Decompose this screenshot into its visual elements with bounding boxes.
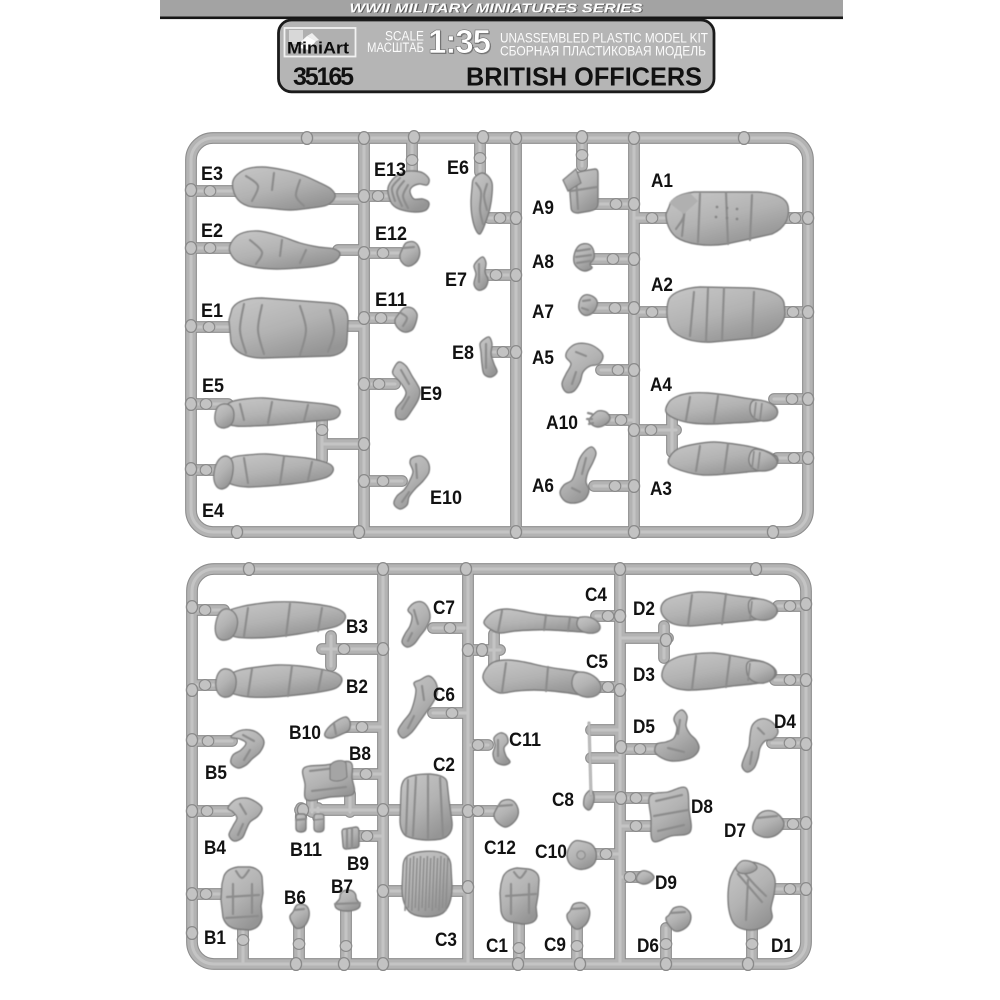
svg-text:A10: A10 (546, 413, 578, 434)
svg-text:E7: E7 (445, 270, 467, 291)
svg-text:B9: B9 (347, 854, 369, 875)
svg-text:D6: D6 (637, 936, 659, 957)
svg-text:C8: C8 (552, 790, 574, 811)
svg-text:A8: A8 (532, 252, 554, 273)
svg-text:C10: C10 (535, 842, 567, 863)
svg-text:WWII MILITARY MINIATURES SERIE: WWII MILITARY MINIATURES SERIES (350, 0, 644, 15)
svg-text:C6: C6 (433, 685, 455, 706)
svg-text:D1: D1 (771, 936, 793, 957)
svg-text:A1: A1 (651, 171, 673, 192)
svg-text:B8: B8 (349, 744, 371, 765)
svg-text:B5: B5 (205, 763, 227, 784)
svg-text:B6: B6 (284, 888, 306, 909)
svg-text:E3: E3 (201, 164, 223, 185)
svg-text:E9: E9 (420, 384, 442, 405)
svg-text:C12: C12 (484, 838, 516, 859)
svg-text:D9: D9 (655, 873, 677, 894)
svg-text:MiniArt: MiniArt (287, 40, 350, 58)
svg-text:E12: E12 (375, 224, 407, 245)
svg-text:E11: E11 (375, 290, 407, 311)
svg-text:B4: B4 (204, 838, 226, 859)
svg-text:D7: D7 (724, 821, 746, 842)
svg-text:E10: E10 (430, 488, 462, 509)
svg-text:C5: C5 (586, 652, 608, 673)
svg-text:B7: B7 (331, 877, 353, 898)
svg-text:E6: E6 (447, 158, 469, 179)
svg-text:E13: E13 (374, 160, 406, 181)
svg-text:C7: C7 (433, 598, 455, 619)
svg-text:A9: A9 (532, 198, 554, 219)
svg-text:E1: E1 (201, 301, 223, 322)
svg-text:D8: D8 (691, 797, 713, 818)
svg-text:B2: B2 (346, 677, 368, 698)
svg-text:B10: B10 (289, 723, 321, 744)
svg-text:D5: D5 (633, 717, 655, 738)
svg-text:1:35: 1:35 (428, 23, 491, 60)
svg-text:B1: B1 (204, 928, 226, 949)
svg-text:A6: A6 (532, 476, 554, 497)
svg-text:E8: E8 (452, 343, 474, 364)
svg-text:D4: D4 (774, 712, 796, 733)
svg-text:C11: C11 (509, 730, 541, 751)
svg-text:E2: E2 (201, 221, 223, 242)
svg-text:A3: A3 (650, 479, 672, 500)
svg-text:B11: B11 (290, 840, 322, 861)
svg-text:E4: E4 (202, 501, 224, 522)
svg-text:МАСШТАБ: МАСШТАБ (367, 40, 424, 55)
svg-text:C1: C1 (486, 936, 508, 957)
svg-text:E5: E5 (202, 376, 224, 397)
svg-text:A5: A5 (532, 348, 554, 369)
svg-text:35165: 35165 (293, 63, 354, 91)
svg-text:A4: A4 (650, 375, 672, 396)
svg-text:C2: C2 (433, 755, 455, 776)
svg-text:BRITISH OFFICERS: BRITISH OFFICERS (466, 61, 702, 91)
svg-text:A7: A7 (532, 302, 554, 323)
svg-text:D3: D3 (633, 665, 655, 686)
svg-text:C3: C3 (435, 930, 457, 951)
svg-text:A2: A2 (651, 275, 673, 296)
svg-text:C4: C4 (585, 585, 607, 606)
svg-text:B3: B3 (346, 617, 368, 638)
svg-text:СБОРНАЯ ПЛАСТИКОВАЯ МОДЕЛЬ: СБОРНАЯ ПЛАСТИКОВАЯ МОДЕЛЬ (500, 44, 706, 59)
svg-text:C9: C9 (544, 935, 566, 956)
svg-text:D2: D2 (633, 599, 655, 620)
